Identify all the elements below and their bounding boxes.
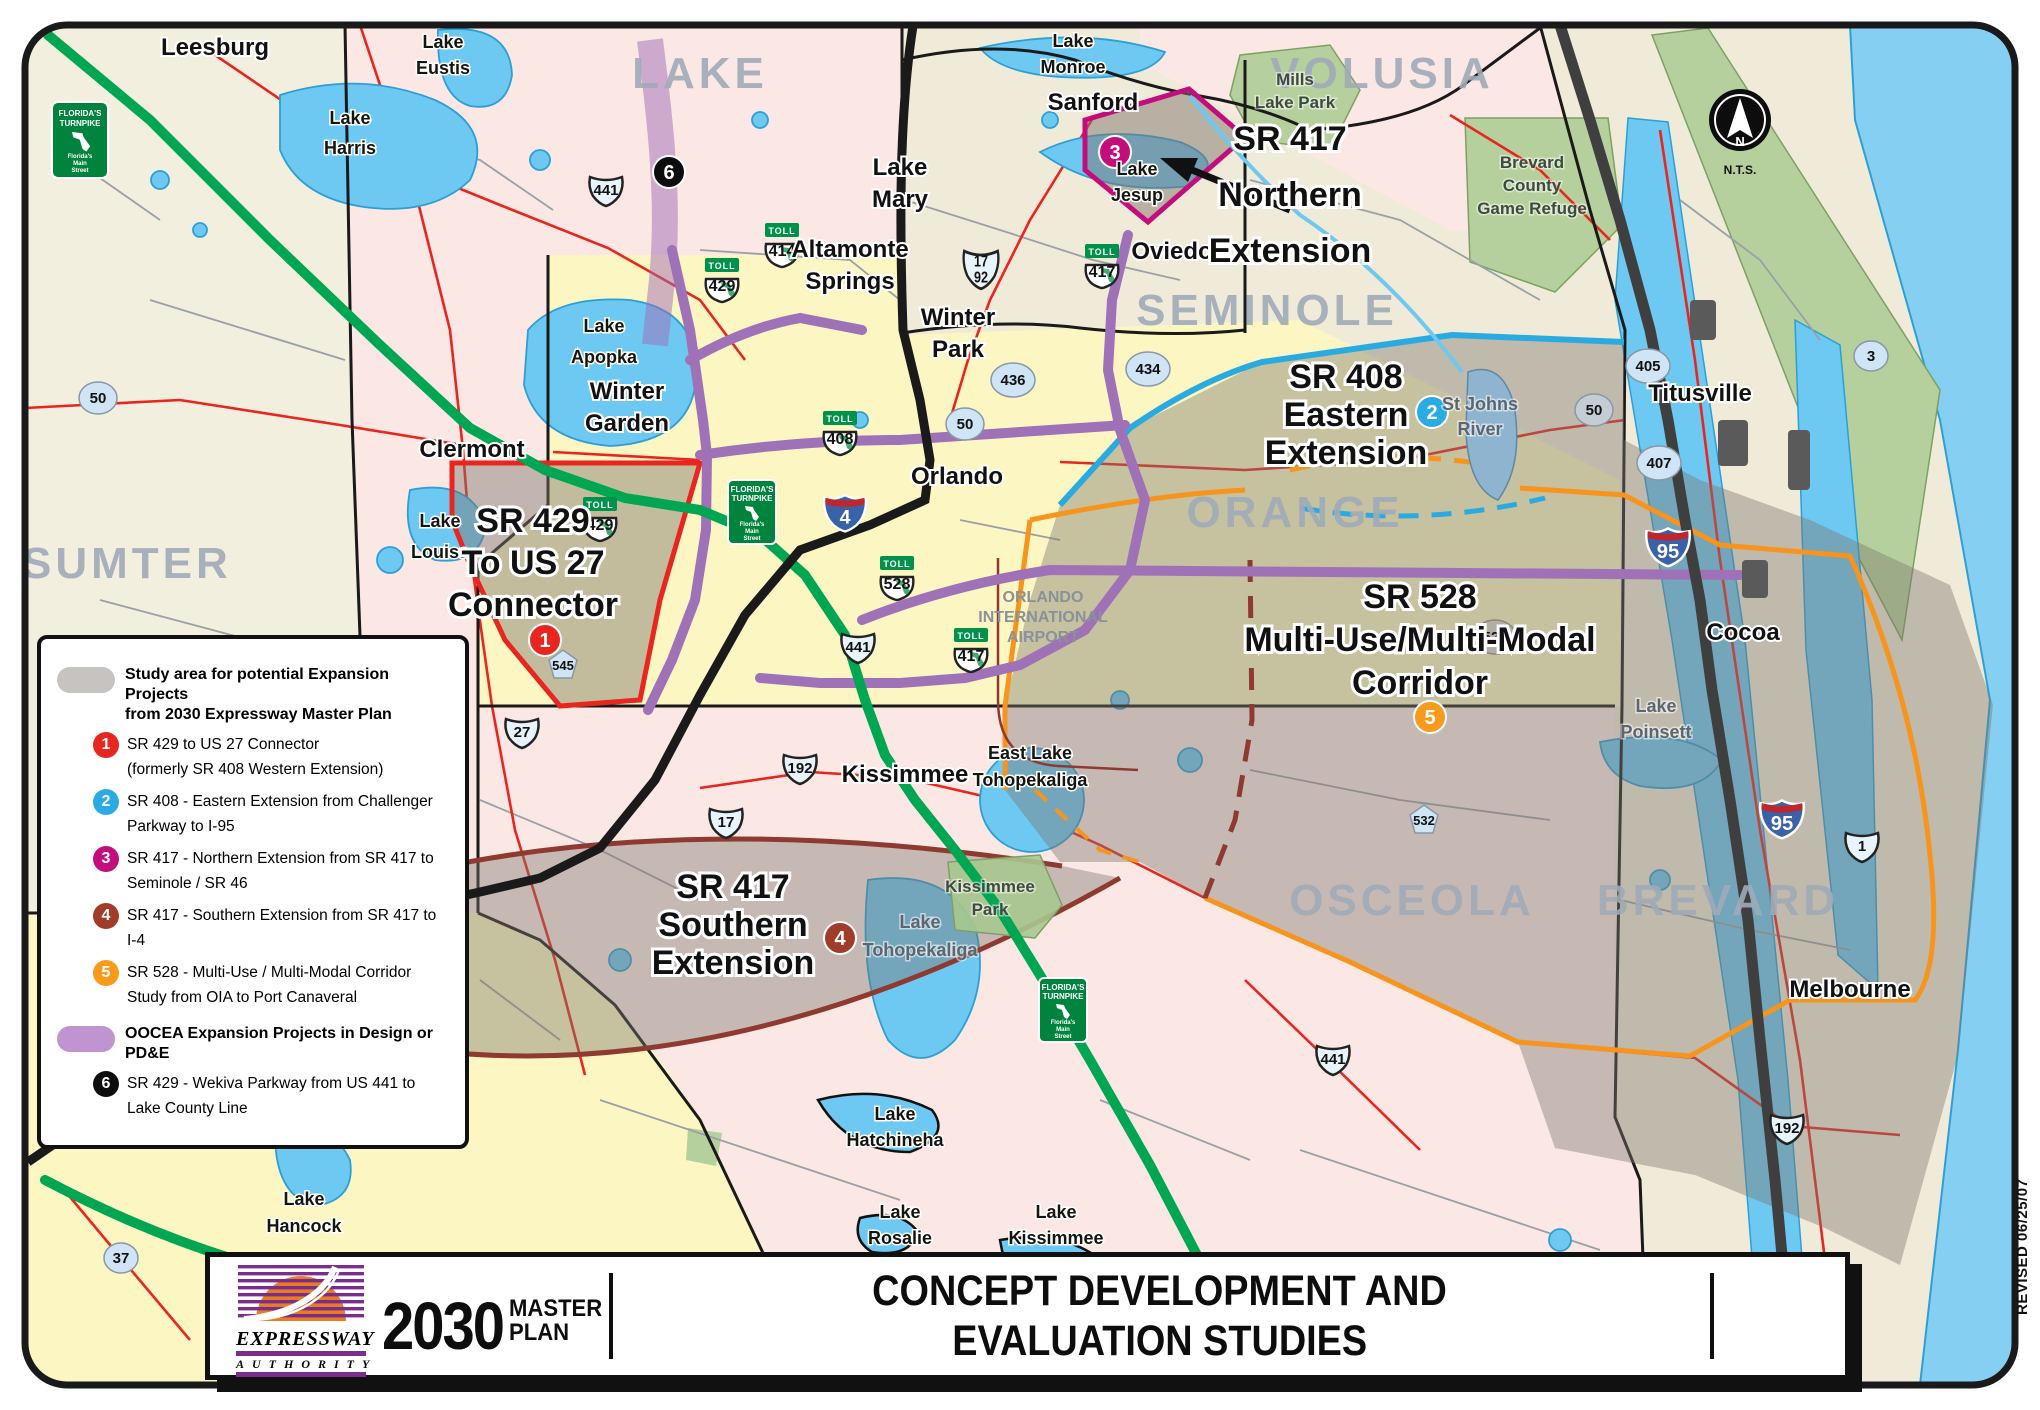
brand-plan: PLAN bbox=[509, 1321, 602, 1345]
svg-text:17: 17 bbox=[718, 814, 735, 831]
svg-text:192: 192 bbox=[1774, 1120, 1799, 1137]
svg-text:Northern: Northern bbox=[1218, 176, 1362, 214]
svg-text:Street: Street bbox=[1054, 1034, 1071, 1040]
svg-text:Street: Street bbox=[743, 536, 760, 542]
svg-text:TURNPIKE: TURNPIKE bbox=[732, 494, 774, 503]
svg-text:1: 1 bbox=[1858, 838, 1866, 855]
svg-text:532: 532 bbox=[1413, 813, 1435, 828]
svg-text:436: 436 bbox=[1000, 372, 1025, 389]
svg-text:Apopka: Apopka bbox=[571, 347, 638, 367]
svg-text:Extension: Extension bbox=[1265, 434, 1427, 472]
svg-text:TOLL: TOLL bbox=[883, 559, 910, 569]
svg-text:417: 417 bbox=[1089, 264, 1116, 281]
svg-text:Lake: Lake bbox=[583, 316, 624, 336]
logo-expressway-text: EXPRESSWAY bbox=[236, 1328, 366, 1350]
svg-text:37: 37 bbox=[113, 1250, 130, 1267]
sr50-west-shield: 50 bbox=[79, 382, 117, 414]
svg-text:4: 4 bbox=[834, 928, 846, 950]
svg-text:Main: Main bbox=[745, 529, 759, 535]
brand-year: 2030 bbox=[382, 1297, 503, 1357]
svg-text:Extension: Extension bbox=[1209, 232, 1371, 270]
legend-item-3: 3 SR 417 - Northern Extension from SR 41… bbox=[93, 846, 451, 896]
svg-text:St Johns: St Johns bbox=[1442, 394, 1518, 414]
svg-text:95: 95 bbox=[1771, 813, 1794, 835]
svg-text:Main: Main bbox=[73, 161, 87, 167]
brand-master: MASTER bbox=[509, 1297, 602, 1321]
gray-study-swatch-icon bbox=[57, 667, 115, 693]
svg-text:Winter: Winter bbox=[590, 378, 664, 405]
legend-badge-2: 2 bbox=[93, 789, 119, 815]
toll-417-south-shield: TOLL417 bbox=[954, 628, 988, 672]
label-sumter: SUMTER bbox=[22, 539, 232, 588]
legend-badge-6: 6 bbox=[93, 1071, 119, 1097]
legend-badge-1: 1 bbox=[93, 732, 119, 758]
legend-badge-4: 4 bbox=[93, 903, 119, 929]
svg-text:Main: Main bbox=[1056, 1027, 1070, 1033]
svg-text:FLORIDA'S: FLORIDA'S bbox=[1042, 983, 1085, 992]
svg-text:Street: Street bbox=[71, 168, 88, 174]
svg-text:Lake: Lake bbox=[874, 1104, 915, 1124]
legend-study-title-2: from 2030 Expressway Master Plan bbox=[125, 705, 451, 725]
svg-text:Corridor: Corridor bbox=[1352, 664, 1488, 702]
svg-text:Eastern: Eastern bbox=[1284, 396, 1409, 434]
sr434-shield: 434 bbox=[1126, 352, 1170, 386]
svg-text:ORLANDO: ORLANDO bbox=[1003, 589, 1084, 606]
svg-text:1: 1 bbox=[539, 630, 550, 652]
svg-text:TOLL: TOLL bbox=[826, 414, 853, 424]
svg-text:TOLL: TOLL bbox=[586, 500, 613, 510]
svg-text:50: 50 bbox=[1586, 402, 1603, 419]
svg-text:Poinsett: Poinsett bbox=[1620, 722, 1691, 742]
svg-text:TOLL: TOLL bbox=[957, 631, 984, 641]
label-seminole: SEMINOLE bbox=[1136, 286, 1398, 335]
svg-text:Florida's: Florida's bbox=[740, 522, 765, 528]
svg-text:To US 27: To US 27 bbox=[462, 544, 605, 582]
svg-text:Lake: Lake bbox=[1035, 1202, 1076, 1222]
logo-authority-text: AUTHORITY bbox=[236, 1357, 366, 1371]
turnpike-sign-center: FLORIDA'STURNPIKE Florida'sMainStreet bbox=[728, 480, 776, 544]
turnpike-sign-northwest: FLORIDA'STURNPIKE Florida'sMainStreet bbox=[52, 102, 108, 178]
sr37-shield: 37 bbox=[104, 1243, 138, 1273]
toll-408-shield: TOLL408 bbox=[823, 411, 857, 455]
svg-text:441: 441 bbox=[845, 639, 870, 656]
svg-text:Park: Park bbox=[972, 900, 1009, 919]
svg-text:FLORIDA'S: FLORIDA'S bbox=[59, 109, 102, 118]
legend-oocea-header: OOCEA Expansion Projects in Design or PD… bbox=[57, 1024, 451, 1064]
svg-text:Connector: Connector bbox=[448, 586, 618, 624]
svg-text:417: 417 bbox=[958, 648, 985, 665]
logo-bar bbox=[236, 1351, 366, 1356]
legend-badge-3: 3 bbox=[93, 846, 119, 872]
svg-text:Lake: Lake bbox=[873, 154, 928, 181]
legend-oocea-title: OOCEA Expansion Projects in Design or PD… bbox=[125, 1024, 451, 1064]
svg-text:Mary: Mary bbox=[872, 186, 929, 213]
legend-item-4: 4 SR 417 - Southern Extension from SR 41… bbox=[93, 903, 451, 953]
svg-text:TOLL: TOLL bbox=[768, 226, 795, 236]
small-park-area bbox=[686, 1128, 722, 1166]
label-lake: LAKE bbox=[632, 49, 768, 98]
toll-417-north-shield: TOLL417 bbox=[1085, 244, 1119, 288]
svg-text:95: 95 bbox=[1657, 541, 1680, 563]
legend-item-1: 1 SR 429 to US 27 Connector(formerly SR … bbox=[93, 732, 451, 782]
svg-text:441: 441 bbox=[593, 182, 618, 199]
sr50-center-shield: 50 bbox=[946, 408, 984, 440]
map-title-line1: CONCEPT DEVELOPMENT AND bbox=[872, 1266, 1447, 1316]
brand-2030-master-plan: 2030 MASTER PLAN bbox=[382, 1297, 610, 1349]
svg-text:545: 545 bbox=[552, 658, 574, 673]
sr50-east-shield: 50 bbox=[1575, 394, 1613, 426]
svg-text:Garden: Garden bbox=[585, 410, 669, 437]
svg-text:Rosalie: Rosalie bbox=[868, 1228, 932, 1248]
svg-text:Florida's: Florida's bbox=[1051, 1020, 1076, 1026]
badge-1: 1 bbox=[529, 624, 561, 656]
svg-text:Lake Park: Lake Park bbox=[1255, 93, 1336, 112]
svg-text:SR 417: SR 417 bbox=[676, 868, 789, 906]
label-melbourne: Melbourne bbox=[1789, 976, 1910, 1003]
logo-sun-icon bbox=[236, 1263, 366, 1323]
label-orange: ORANGE bbox=[1186, 488, 1403, 537]
svg-text:429: 429 bbox=[587, 517, 614, 534]
svg-text:Jesup: Jesup bbox=[1111, 185, 1163, 205]
toll-429-north-shield: TOLL429 bbox=[705, 258, 739, 302]
svg-text:Game Refuge: Game Refuge bbox=[1477, 199, 1587, 218]
svg-text:Mills: Mills bbox=[1276, 70, 1314, 89]
map-title: CONCEPT DEVELOPMENT AND EVALUATION STUDI… bbox=[609, 1257, 1710, 1375]
svg-text:River: River bbox=[1457, 419, 1502, 439]
svg-text:441: 441 bbox=[1320, 1051, 1345, 1068]
svg-text:Lake: Lake bbox=[899, 912, 940, 932]
legend-box: Study area for potential Expansion Proje… bbox=[37, 635, 469, 1149]
small-lake bbox=[377, 547, 403, 573]
toll-528-shield: TOLL528 bbox=[880, 556, 914, 600]
svg-text:Lake: Lake bbox=[283, 1189, 324, 1209]
svg-text:405: 405 bbox=[1635, 358, 1660, 375]
svg-text:3: 3 bbox=[1867, 348, 1875, 365]
svg-text:Brevard: Brevard bbox=[1500, 153, 1564, 172]
svg-text:TOLL: TOLL bbox=[708, 261, 735, 271]
svg-text:Eustis: Eustis bbox=[416, 58, 470, 78]
svg-text:6: 6 bbox=[663, 162, 674, 184]
sr405-shield: 405 bbox=[1626, 349, 1670, 383]
svg-text:TURNPIKE: TURNPIKE bbox=[60, 119, 102, 128]
svg-text:SR 417: SR 417 bbox=[1233, 120, 1346, 158]
svg-text:Hancock: Hancock bbox=[266, 1216, 342, 1236]
svg-text:Springs: Springs bbox=[805, 268, 894, 295]
svg-text:Harris: Harris bbox=[324, 138, 376, 158]
map-document: 441 1792 441 27 192 17 441 192 1 50 436 … bbox=[0, 0, 2040, 1410]
svg-text:SR 408: SR 408 bbox=[1289, 358, 1402, 396]
svg-text:Tohopekaliga: Tohopekaliga bbox=[973, 770, 1089, 790]
svg-text:429: 429 bbox=[709, 278, 736, 295]
svg-text:Kissimmee: Kissimmee bbox=[1008, 1228, 1103, 1248]
label-brevard: BREVARD bbox=[1597, 876, 1839, 925]
legend-item-5: 5 SR 528 - Multi-Use / Multi-Modal Corri… bbox=[93, 960, 451, 1010]
svg-text:Monroe: Monroe bbox=[1041, 57, 1106, 77]
svg-text:Lake: Lake bbox=[419, 511, 460, 531]
svg-text:Lake: Lake bbox=[329, 108, 370, 128]
svg-text:407: 407 bbox=[1646, 455, 1671, 472]
label-orlando: Orlando bbox=[911, 463, 1003, 490]
label-kissimmee: Kissimmee bbox=[842, 761, 969, 788]
svg-text:East Lake: East Lake bbox=[988, 743, 1072, 763]
label-titusville: Titusville bbox=[1648, 380, 1752, 407]
badge-4: 4 bbox=[824, 922, 856, 954]
label-sanford: Sanford bbox=[1048, 89, 1139, 116]
svg-text:TOLL: TOLL bbox=[1088, 247, 1115, 257]
legend-item-2: 2 SR 408 - Eastern Extension from Challe… bbox=[93, 789, 451, 839]
svg-text:SR 528: SR 528 bbox=[1363, 578, 1476, 616]
svg-text:County: County bbox=[1503, 176, 1562, 195]
svg-text:Extension: Extension bbox=[652, 944, 814, 982]
svg-text:50: 50 bbox=[90, 390, 107, 407]
revised-date: REVISED 06/25/07 bbox=[2014, 1179, 2031, 1315]
svg-text:INTERNATIONAL: INTERNATIONAL bbox=[978, 609, 1108, 626]
svg-text:AIRPORT: AIRPORT bbox=[1007, 629, 1079, 646]
svg-text:Tohopekaliga: Tohopekaliga bbox=[863, 940, 979, 960]
svg-text:Lake: Lake bbox=[879, 1202, 920, 1222]
svg-text:Florida's: Florida's bbox=[68, 154, 93, 160]
map-title-line2: EVALUATION STUDIES bbox=[952, 1316, 1367, 1366]
sr3-shield: 3 bbox=[1854, 341, 1888, 371]
svg-text:192: 192 bbox=[787, 760, 812, 777]
title-banner: EXPRESSWAY AUTHORITY 2030 MASTER PLAN CO… bbox=[205, 1252, 1850, 1380]
svg-text:Park: Park bbox=[932, 336, 985, 363]
svg-text:Winter: Winter bbox=[921, 304, 995, 331]
label-cocoa: Cocoa bbox=[1706, 619, 1780, 646]
svg-text:Multi-Use/Multi-Modal: Multi-Use/Multi-Modal bbox=[1244, 621, 1595, 659]
label-clermont: Clermont bbox=[419, 436, 524, 463]
svg-text:408: 408 bbox=[827, 431, 854, 448]
svg-text:4: 4 bbox=[840, 507, 851, 529]
svg-text:N: N bbox=[1735, 134, 1744, 149]
legend-study-header: Study area for potential Expansion Proje… bbox=[57, 665, 451, 725]
svg-text:Hatchineha: Hatchineha bbox=[846, 1130, 944, 1150]
svg-text:FLORIDA'S: FLORIDA'S bbox=[731, 485, 774, 494]
svg-text:Kissimmee: Kissimmee bbox=[945, 877, 1035, 896]
svg-text:Altamonte: Altamonte bbox=[791, 236, 908, 263]
sr436-shield: 436 bbox=[991, 363, 1035, 397]
label-leesburg: Leesburg bbox=[161, 34, 269, 61]
logo-bar-2 bbox=[236, 1372, 366, 1377]
svg-text:27: 27 bbox=[514, 724, 531, 741]
legend-study-title-1: Study area for potential Expansion Proje… bbox=[125, 665, 451, 705]
expressway-authority-logo: EXPRESSWAY AUTHORITY bbox=[236, 1263, 366, 1369]
svg-text:Lake: Lake bbox=[1635, 696, 1676, 716]
legend-badge-5: 5 bbox=[93, 960, 119, 986]
svg-text:2: 2 bbox=[1426, 402, 1437, 424]
svg-text:SR 429: SR 429 bbox=[476, 502, 589, 540]
badge-6: 6 bbox=[653, 156, 685, 188]
svg-text:50: 50 bbox=[957, 416, 974, 433]
sr407-shield: 407 bbox=[1637, 446, 1681, 480]
legend-item-6: 6 SR 429 - Wekiva Parkway from US 441 to… bbox=[93, 1071, 451, 1121]
svg-text:92: 92 bbox=[974, 269, 988, 287]
badge-5: 5 bbox=[1414, 701, 1446, 733]
label-oviedo: Oviedo bbox=[1131, 238, 1212, 265]
turnpike-sign-south: FLORIDA'STURNPIKE Florida'sMainStreet bbox=[1039, 978, 1087, 1042]
svg-text:N.T.S.: N.T.S. bbox=[1724, 163, 1757, 177]
banner-divider-right bbox=[1710, 1273, 1714, 1359]
svg-text:5: 5 bbox=[1424, 707, 1435, 729]
svg-text:528: 528 bbox=[884, 576, 911, 593]
svg-text:Lake: Lake bbox=[1116, 159, 1157, 179]
svg-text:Lake: Lake bbox=[422, 32, 463, 52]
svg-text:TURNPIKE: TURNPIKE bbox=[1043, 992, 1085, 1001]
label-osceola: OSCEOLA bbox=[1289, 876, 1535, 925]
svg-text:434: 434 bbox=[1135, 361, 1161, 378]
svg-text:Southern: Southern bbox=[658, 906, 807, 944]
svg-text:Lake: Lake bbox=[1052, 31, 1093, 51]
purple-project-swatch-icon bbox=[57, 1026, 115, 1052]
